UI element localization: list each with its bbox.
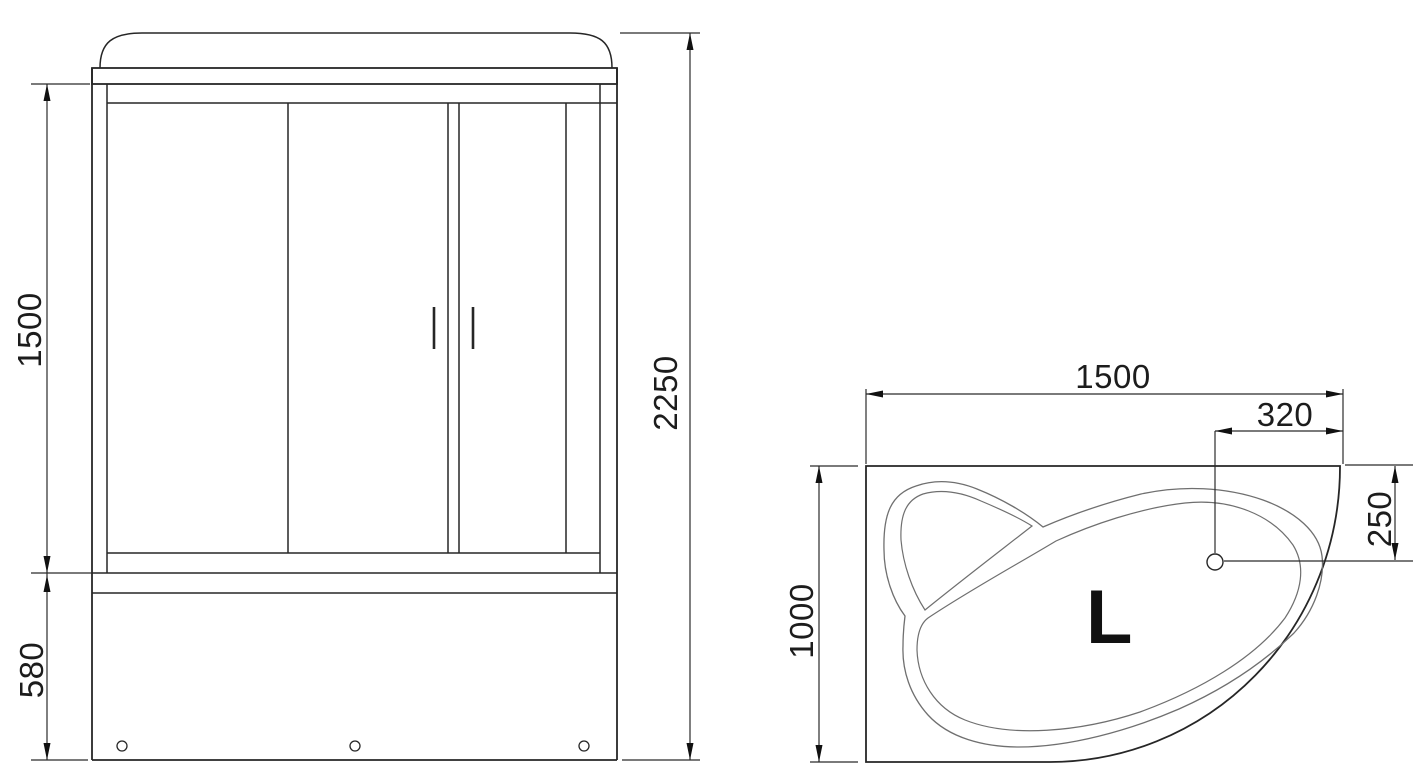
arrow-1000-up [816, 466, 823, 483]
dome-top-outline [100, 33, 612, 68]
arrow-320-right [1326, 428, 1343, 435]
headrest-inner-outline [901, 492, 1032, 610]
drawing-sheet: 1500 580 2250 [0, 0, 1415, 784]
arrow-1500-up [44, 84, 51, 101]
arrow-1500-down [44, 556, 51, 573]
arrow-2250-up [687, 33, 694, 50]
dim-label-drain-top: 250 [1361, 491, 1398, 548]
dim-label-total-height: 2250 [647, 355, 684, 430]
technical-drawing-canvas: 1500 580 2250 [0, 0, 1415, 784]
arrow-width-left [866, 391, 883, 398]
foot-right [579, 741, 589, 751]
dim-label-width: 1500 [1075, 358, 1150, 395]
arrow-320-left [1215, 428, 1232, 435]
foot-left [117, 741, 127, 751]
arrow-580-down [44, 743, 51, 760]
arrow-250-up [1392, 466, 1399, 483]
front-view-dim-arrows [44, 33, 694, 760]
arrow-1000-down [816, 745, 823, 762]
arrow-width-right [1326, 391, 1343, 398]
top-view [866, 431, 1413, 762]
front-view [92, 33, 617, 760]
dim-label-tray-height: 580 [13, 642, 50, 699]
foot-center [350, 741, 360, 751]
arrow-580-up [44, 575, 51, 592]
dim-label-depth: 1000 [783, 583, 820, 658]
orientation-label: L [1086, 575, 1132, 660]
top-frame-band [92, 68, 617, 84]
dim-label-drain-right: 320 [1257, 396, 1314, 433]
arrow-2250-down [687, 743, 694, 760]
drain-circle [1207, 554, 1223, 570]
dim-label-glass-height: 1500 [11, 292, 48, 367]
